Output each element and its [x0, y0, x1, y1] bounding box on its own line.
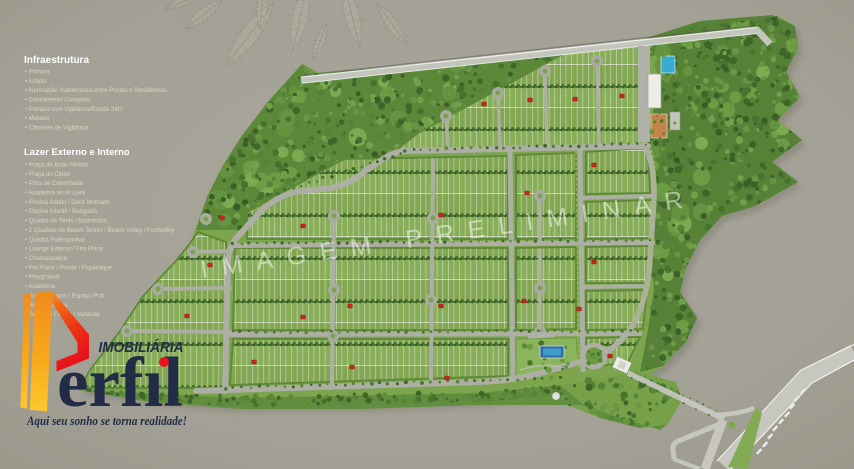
svg-text:• Iluminação Subterrânea entre: • Iluminação Subterrânea entre Postes e …	[25, 87, 167, 94]
svg-text:Lazer Externo e Interno: Lazer Externo e Interno	[24, 147, 130, 158]
svg-text:• Churrasqueira: • Churrasqueira	[25, 255, 67, 262]
svg-text:• Piscina Infantil / Bangalôs: • Piscina Infantil / Bangalôs	[25, 208, 97, 215]
svg-text:• Pista de Caminhada: • Pista de Caminhada	[25, 180, 83, 187]
svg-text:• Playground: • Playground	[25, 274, 59, 281]
svg-text:• 2 Quadras de Beach Tennis /: • 2 Quadras de Beach Tennis / Beach Voll…	[25, 227, 175, 234]
svg-text:• Academia ao Ar Livre: • Academia ao Ar Livre	[25, 190, 86, 197]
svg-text:Infraestrutura: Infraestrutura	[24, 55, 89, 66]
svg-text:erfıl: erfıl	[57, 344, 183, 422]
svg-text:• Praça de Boas-Vindas: • Praça de Boas-Vindas	[25, 162, 88, 169]
svg-text:• Portaria: • Portaria	[25, 69, 50, 76]
svg-text:• Portaria com Vigilância/Rond: • Portaria com Vigilância/Ronda 24h°	[25, 106, 124, 113]
svg-text:• Asfalto: • Asfalto	[25, 78, 47, 85]
svg-text:• Quadra de Tênis / Badminton: • Quadra de Tênis / Badminton	[25, 218, 107, 225]
svg-text:Aqui seu sonho se torna realid: Aqui seu sonho se torna realidade!	[26, 413, 187, 428]
svg-text:• Quadra Poliesportiva: • Quadra Poliesportiva	[25, 236, 85, 243]
svg-text:• Piscina Adulto / Deck Molhad: • Piscina Adulto / Deck Molhado	[25, 199, 110, 206]
svg-text:• Lounge Externo / Fire Place: • Lounge Externo / Fire Place	[25, 246, 104, 253]
svg-text:• Pet Place / Pomar / Piqueniq: • Pet Place / Pomar / Piquenique	[25, 264, 113, 271]
svg-text:• Câmeras de Vigilância: • Câmeras de Vigilância	[25, 125, 89, 132]
svg-text:• Murado: • Murado	[25, 115, 50, 122]
svg-text:• Praça do Clube: • Praça do Clube	[25, 171, 71, 178]
svg-text:• Saneamento Completo: • Saneamento Completo	[25, 97, 91, 104]
svg-text:• Academia: • Academia	[25, 283, 56, 290]
